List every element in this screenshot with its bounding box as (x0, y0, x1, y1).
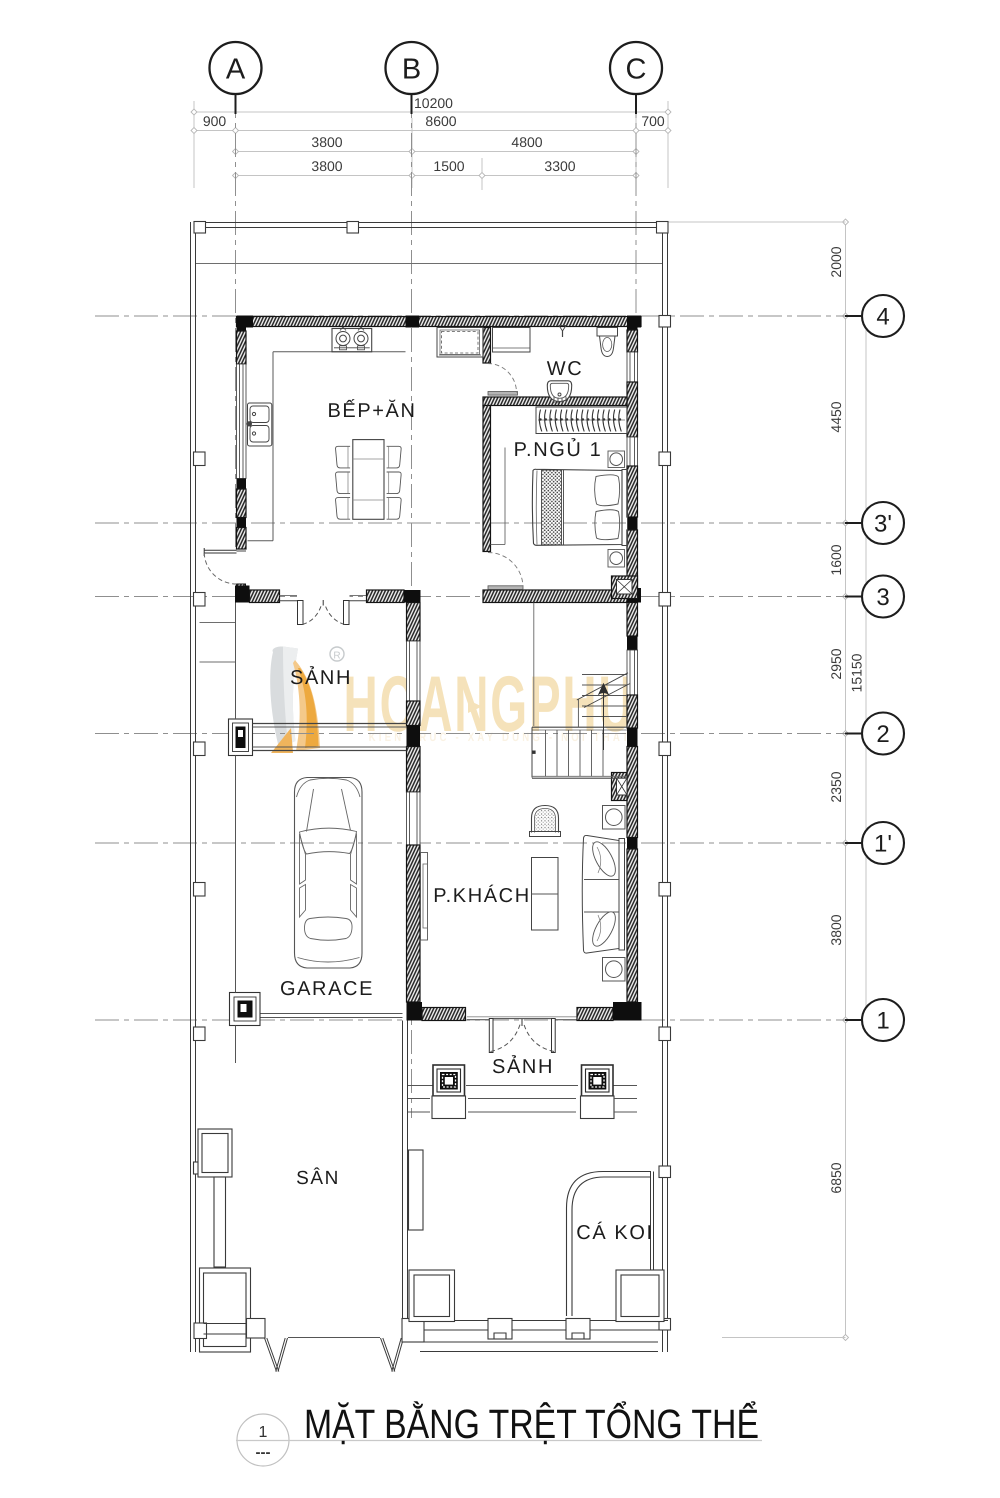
svg-text:8600: 8600 (425, 113, 456, 129)
svg-text:10200: 10200 (414, 95, 453, 111)
svg-text:P.NGỦ 1: P.NGỦ 1 (514, 438, 603, 461)
svg-text:3800: 3800 (311, 158, 342, 174)
svg-text:C: C (626, 53, 647, 85)
svg-text:R: R (333, 651, 340, 662)
svg-text:3': 3' (874, 511, 892, 538)
svg-text:3800: 3800 (311, 134, 342, 150)
svg-text:1600: 1600 (828, 544, 844, 575)
svg-text:1': 1' (874, 831, 892, 858)
svg-text:4: 4 (876, 304, 889, 331)
svg-text:P.KHÁCH: P.KHÁCH (433, 884, 531, 907)
svg-text:3300: 3300 (544, 158, 575, 174)
svg-text:900: 900 (203, 113, 227, 129)
svg-text:3800: 3800 (828, 914, 844, 945)
svg-text:4800: 4800 (511, 134, 542, 150)
svg-text:CÁ KOI: CÁ KOI (576, 1221, 653, 1244)
svg-text:B: B (402, 53, 421, 85)
svg-text:6850: 6850 (828, 1162, 844, 1193)
svg-text:SẢNH: SẢNH (492, 1055, 554, 1078)
svg-text:GARACE: GARACE (280, 978, 374, 1000)
svg-text:700: 700 (641, 113, 665, 129)
svg-text:2000: 2000 (828, 246, 844, 277)
svg-text:15150: 15150 (849, 653, 865, 692)
svg-text:SẢNH: SẢNH (290, 666, 352, 689)
svg-text:2350: 2350 (828, 771, 844, 802)
svg-text:BẾP+ĂN: BẾP+ĂN (327, 399, 416, 422)
svg-text:SÂN: SÂN (296, 1167, 340, 1189)
svg-text:2: 2 (876, 721, 889, 748)
svg-text:A: A (226, 53, 246, 85)
svg-text:---: --- (256, 1444, 271, 1461)
svg-text:1: 1 (876, 1008, 889, 1035)
svg-text:MẶT BẰNG TRỆT TỔNG THỂ: MẶT BẰNG TRỆT TỔNG THỂ (304, 1401, 759, 1447)
svg-text:4450: 4450 (828, 401, 844, 432)
svg-text:1: 1 (259, 1424, 268, 1441)
svg-text:3: 3 (876, 584, 889, 611)
svg-text:2950: 2950 (828, 648, 844, 679)
svg-text:WC: WC (547, 358, 584, 380)
svg-text:1500: 1500 (433, 158, 464, 174)
